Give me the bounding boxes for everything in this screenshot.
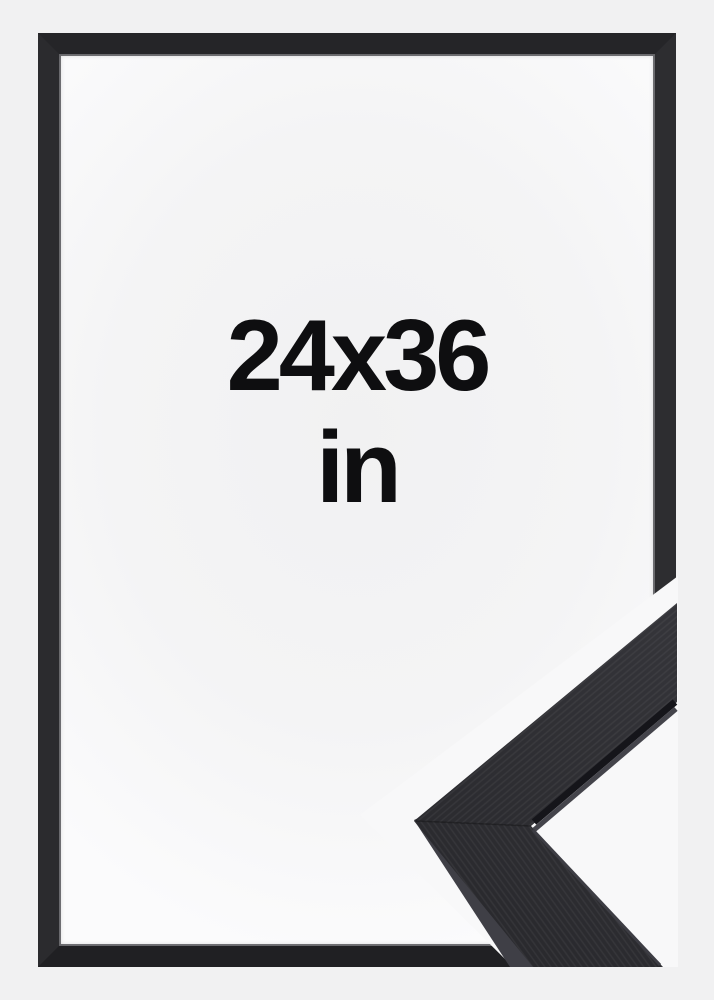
frame-product-image: 24x36 in bbox=[0, 0, 714, 1000]
size-unit: in bbox=[59, 412, 655, 524]
size-value: 24x36 bbox=[59, 300, 655, 412]
frame-mockup: 24x36 in bbox=[38, 33, 676, 967]
frame-opening: 24x36 in bbox=[59, 54, 655, 946]
size-label-block: 24x36 in bbox=[59, 300, 655, 524]
